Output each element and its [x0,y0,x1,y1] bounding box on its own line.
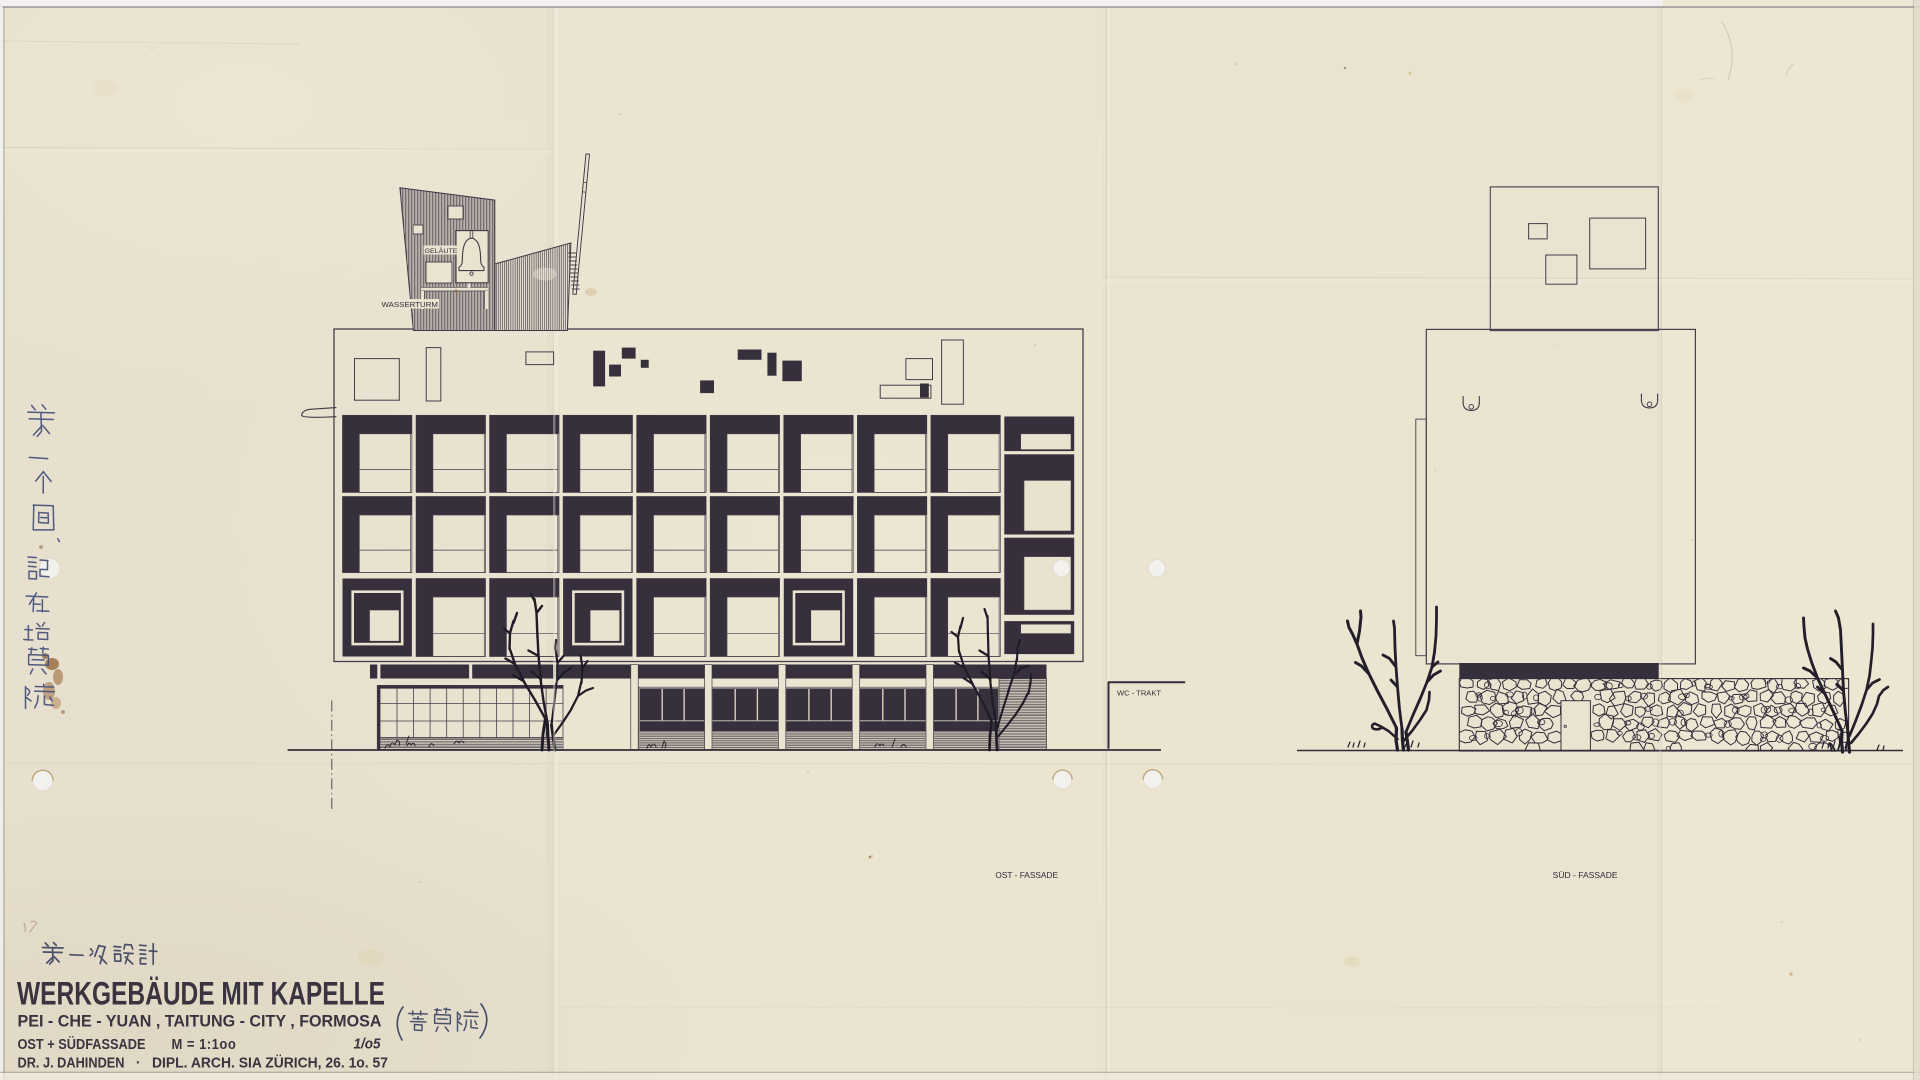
svg-text:PEI - CHE - YUAN , TAITUNG - C: PEI - CHE - YUAN , TAITUNG - CITY , FORM… [18,1013,382,1031]
svg-text:SÜD - FASSADE: SÜD - FASSADE [1553,871,1618,880]
svg-text:DR. J. DAHINDEN: DR. J. DAHINDEN [18,1055,125,1071]
svg-text:GELÄUTE: GELÄUTE [425,247,459,255]
svg-text:M = 1:1oo: M = 1:1oo [172,1036,237,1052]
svg-text:OST + SÜDFASSADE: OST + SÜDFASSADE [18,1035,146,1052]
svg-text:·: · [136,1055,140,1071]
svg-text:OST - FASSADE: OST - FASSADE [995,871,1058,880]
svg-text:1/o5: 1/o5 [354,1036,382,1053]
svg-text:WASSERTURM: WASSERTURM [382,302,439,309]
svg-text:WC - TRAKT: WC - TRAKT [1117,689,1162,698]
svg-text:WERKGEBÄUDE MIT KAPELLE: WERKGEBÄUDE MIT KAPELLE [17,976,385,1013]
svg-text:DIPL. ARCH. SIA ZÜRICH, 26. 1: DIPL. ARCH. SIA ZÜRICH, 26. 1o. 57 [152,1055,388,1071]
